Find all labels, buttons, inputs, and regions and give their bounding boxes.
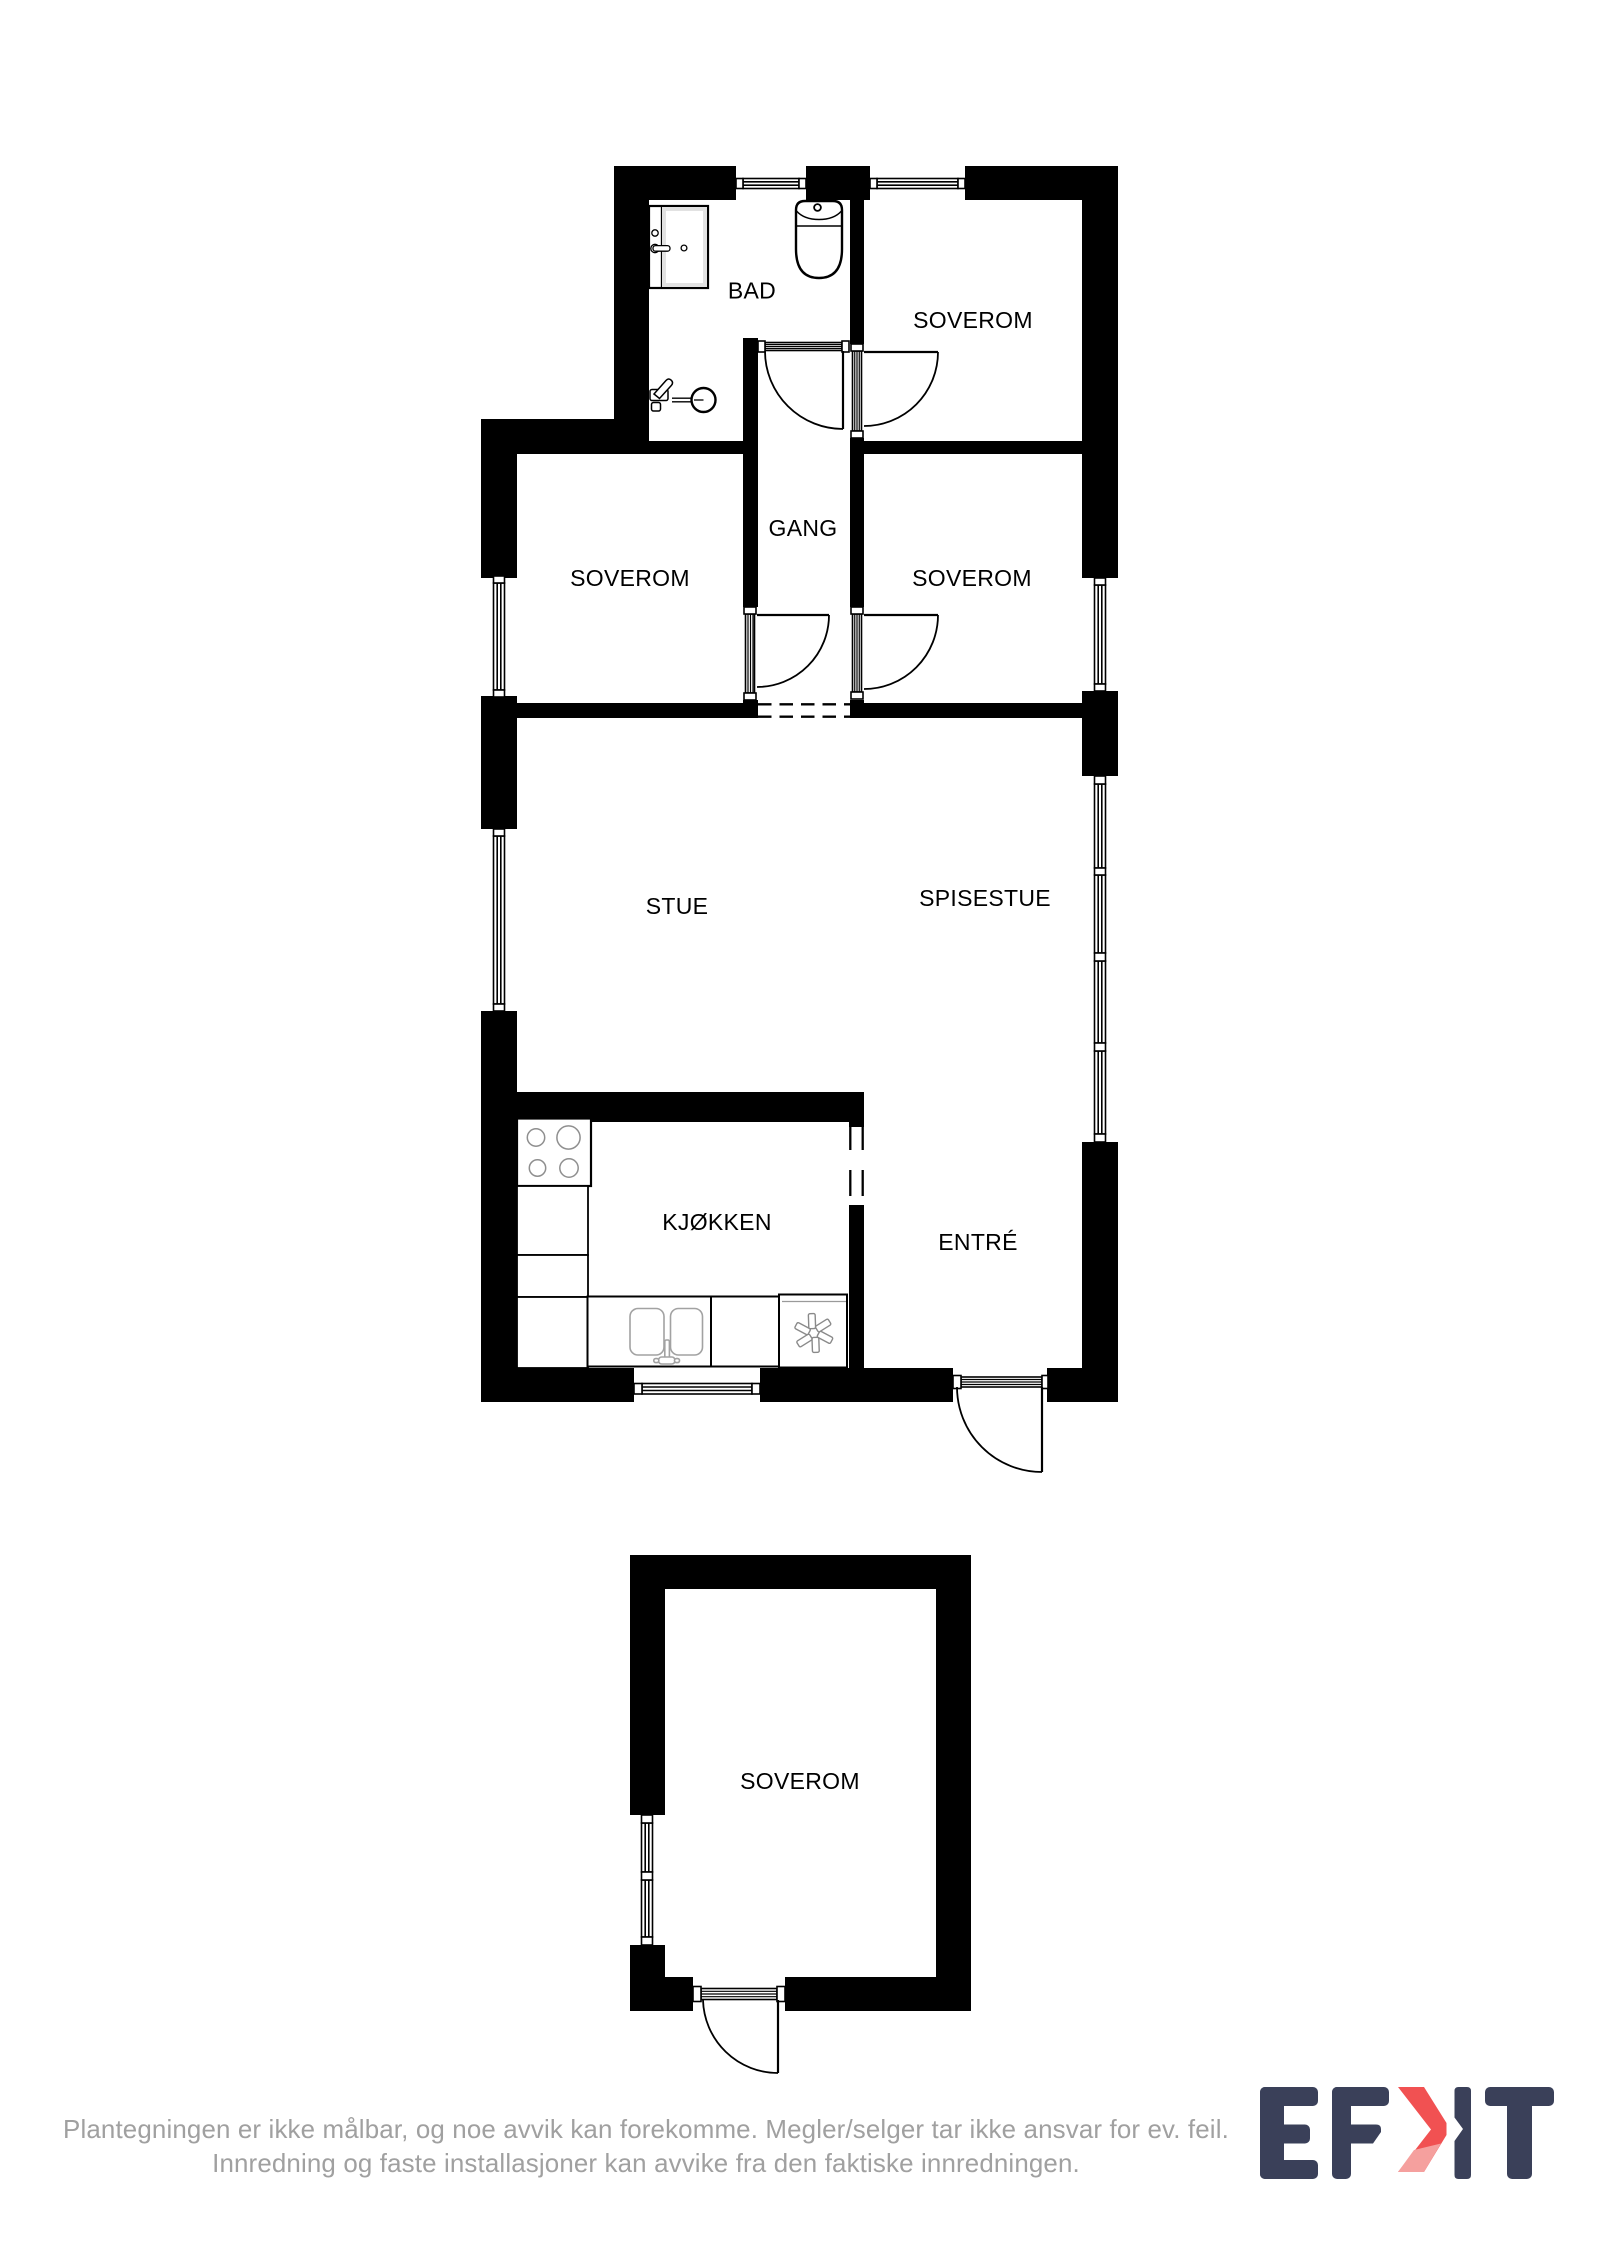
svg-text:SOVEROM: SOVEROM [570,565,690,591]
svg-text:SOVEROM: SOVEROM [912,565,1032,591]
svg-text:GANG: GANG [769,515,838,541]
svg-text:STUE: STUE [646,893,709,919]
svg-text:SPISESTUE: SPISESTUE [919,885,1051,911]
svg-text:KJØKKEN: KJØKKEN [662,1209,771,1235]
svg-text:SOVEROM: SOVEROM [913,307,1033,333]
svg-text:Innredning og faste installasj: Innredning og faste installasjoner kan a… [212,2150,1080,2178]
svg-text:Plantegningen er ikke målbar,: Plantegningen er ikke målbar, og noe avv… [63,2116,1229,2144]
svg-text:ENTRÉ: ENTRÉ [938,1229,1017,1255]
svg-text:SOVEROM: SOVEROM [740,1768,860,1794]
svg-text:BAD: BAD [728,278,776,304]
